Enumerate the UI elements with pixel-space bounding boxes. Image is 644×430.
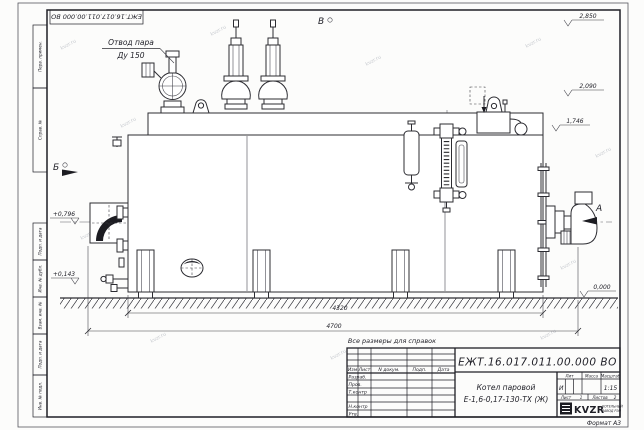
side-stamp-label: Подп. и дата (38, 340, 43, 368)
th-data: Дата (437, 367, 450, 373)
elevation-value: 0,000 (593, 284, 610, 291)
row-prov: Пров. (349, 382, 362, 388)
row-tkontr: Т.контр (349, 390, 368, 396)
view-v-label: В (318, 17, 324, 27)
kvzr-logo-text: KVZR (574, 405, 605, 416)
steam-valve (142, 51, 186, 113)
title-block: Изм Лист N докум. Подп. Дата Разраб. Про… (347, 348, 623, 418)
th-izm: Изм (348, 367, 358, 373)
steam-outlet-label: Отвод пара (108, 38, 154, 47)
sheets-value: 2 (614, 395, 617, 400)
frame-top-docnumber: ЕЖТ.16.017.011.00.000 ВО (50, 10, 143, 24)
lit-label: Лит (564, 374, 574, 379)
drawing-canvas: Перв. примен. Справ. № Подп. и дата Инв.… (0, 0, 644, 430)
scale-value: 1:15 (604, 385, 618, 392)
row-utv: Утв. (349, 412, 359, 418)
elevation-value: 2,850 (579, 13, 596, 20)
elevation-value: 2,090 (579, 83, 596, 90)
product-name: Котел паровой (477, 383, 536, 392)
elevation-value: 1,746 (566, 118, 583, 125)
rear-top-fittings (470, 87, 527, 135)
logo-caption-2: ЗАВОД РЭП (602, 409, 622, 413)
elevation-2090: 2,090 (564, 83, 604, 96)
kvzr-logo: KVZR КОТЕЛЬНЫЙ ЗАВОД РЭП (560, 403, 623, 417)
dimension-value: 4700 (326, 323, 341, 330)
sheets-label: Листов (591, 395, 608, 400)
burner-unit (546, 192, 597, 297)
side-stamp-label: Справ. № (38, 119, 43, 140)
steam-outlet-callout: Отвод пара Ду 150 (102, 38, 174, 63)
view-marker-v: В (318, 17, 332, 27)
product-model: Е-1,6-0,17-130-ТХ (Ж) (464, 395, 549, 404)
side-stamp-label: Подп. и дата (38, 227, 43, 255)
drawing-sheet: kvzr.ru kvzr.ru kvzr.ru kvzr.ru kvzr.ru … (0, 0, 644, 430)
view-a-label: А (595, 204, 602, 214)
sheet-value: 1 (580, 395, 583, 400)
row-nkontr: Н.контр (349, 404, 368, 410)
boiler-drawing (60, 20, 618, 309)
manhole (181, 259, 203, 277)
top-doc-number: ЕЖТ.16.017.011.00.000 ВО (51, 13, 142, 21)
row-razrab: Разраб. (349, 375, 367, 381)
safety-valve (222, 20, 251, 109)
view-marker-b: Б (53, 163, 78, 176)
side-stamp-label: Перв. примен. (38, 41, 43, 72)
elevation-1746: 1,746 (552, 118, 590, 131)
elevation-0000: 0,000 (580, 284, 616, 297)
titleblock-doc-number: ЕЖТ.16.017.011.00.000 ВО (458, 357, 617, 369)
steam-outlet-dn: Ду 150 (117, 51, 145, 60)
view-b-label: Б (53, 163, 59, 173)
dimension-value: 4320 (332, 305, 347, 312)
side-stamp-label: Взам. инв. № (38, 301, 43, 330)
elevation-value: +0,143 (53, 271, 75, 278)
th-ndocum: N докум. (378, 367, 399, 373)
side-stamp-label: Инв. № подл. (38, 382, 43, 410)
frame-side-stamps: Перв. примен. Справ. № Подп. и дата Инв.… (33, 25, 47, 417)
reference-note: Все размеры для справок (348, 337, 436, 345)
logo-caption-1: КОТЕЛЬНЫЙ (602, 404, 623, 409)
massa-label: Масса (585, 374, 599, 379)
elevation-2850: 2,850 (564, 13, 604, 26)
format-label: Формат А3 (587, 420, 621, 427)
lifting-lug (193, 100, 209, 113)
sheet-label: Лист (560, 395, 572, 400)
elevation-value: +0,796 (53, 211, 75, 218)
elevation-front-lo: +0,143 (51, 271, 79, 284)
th-list: Лист (358, 367, 371, 373)
lit-value: И (559, 385, 564, 392)
masshtab-label: Масштаб (601, 374, 621, 379)
side-stamp-label: Инв. № дубл. (38, 264, 43, 292)
th-podp: Подп. (413, 367, 427, 373)
support-leg (137, 250, 154, 298)
